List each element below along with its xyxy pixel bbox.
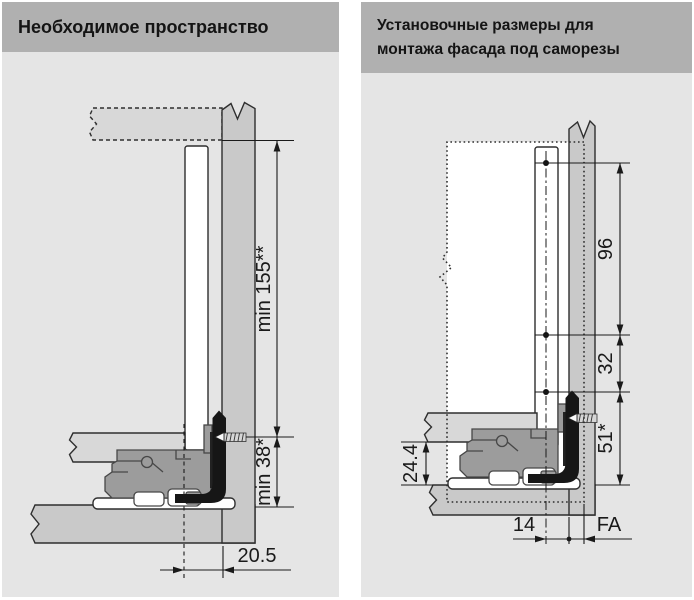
dim-arrow [274,427,281,438]
dim-arrow [423,442,430,453]
dim-arrow [584,536,595,543]
dim-label-51: 51* [595,423,617,453]
dim-arrow [617,335,624,346]
dim-arrow [617,382,624,393]
right-diagram: 96 32 51* 24.4 14 FA [400,121,632,544]
dim-label-96: 96 [595,238,617,260]
runner-slot-left [134,492,164,506]
dim-label-gap: 20.5 [238,545,277,567]
left-diagram: min 155** min 38* 20.5 [31,103,294,580]
front-panel [222,103,255,544]
dim-label-min-height: min 155** [253,245,275,332]
dim-arrow [617,392,624,403]
dim-arrow [274,141,281,152]
cabinet-top-panel [90,108,223,140]
dim-point [567,537,572,542]
dim-label-24-4: 24.4 [400,444,422,483]
dim-label-14: 14 [513,514,535,536]
dim-arrow [423,475,430,486]
dim-label-min-bottom: min 38* [253,438,275,506]
runner-hole [497,436,508,447]
dim-arrow [617,325,624,336]
dim-label-fa: FA [597,514,622,536]
runner-slot-left [489,471,519,485]
dim-arrow [173,567,184,574]
dim-label-32: 32 [595,352,617,374]
catalog-page: Необходимое пространство Установочные ра… [0,0,694,600]
dim-arrow [535,536,546,543]
dim-arrow [223,567,234,574]
dim-arrow [617,475,624,486]
drawer-back-panel [185,146,208,450]
dim-arrow [617,163,624,174]
runner-hole [142,457,153,468]
technical-drawing: min 155** min 38* 20.5 [0,0,694,600]
